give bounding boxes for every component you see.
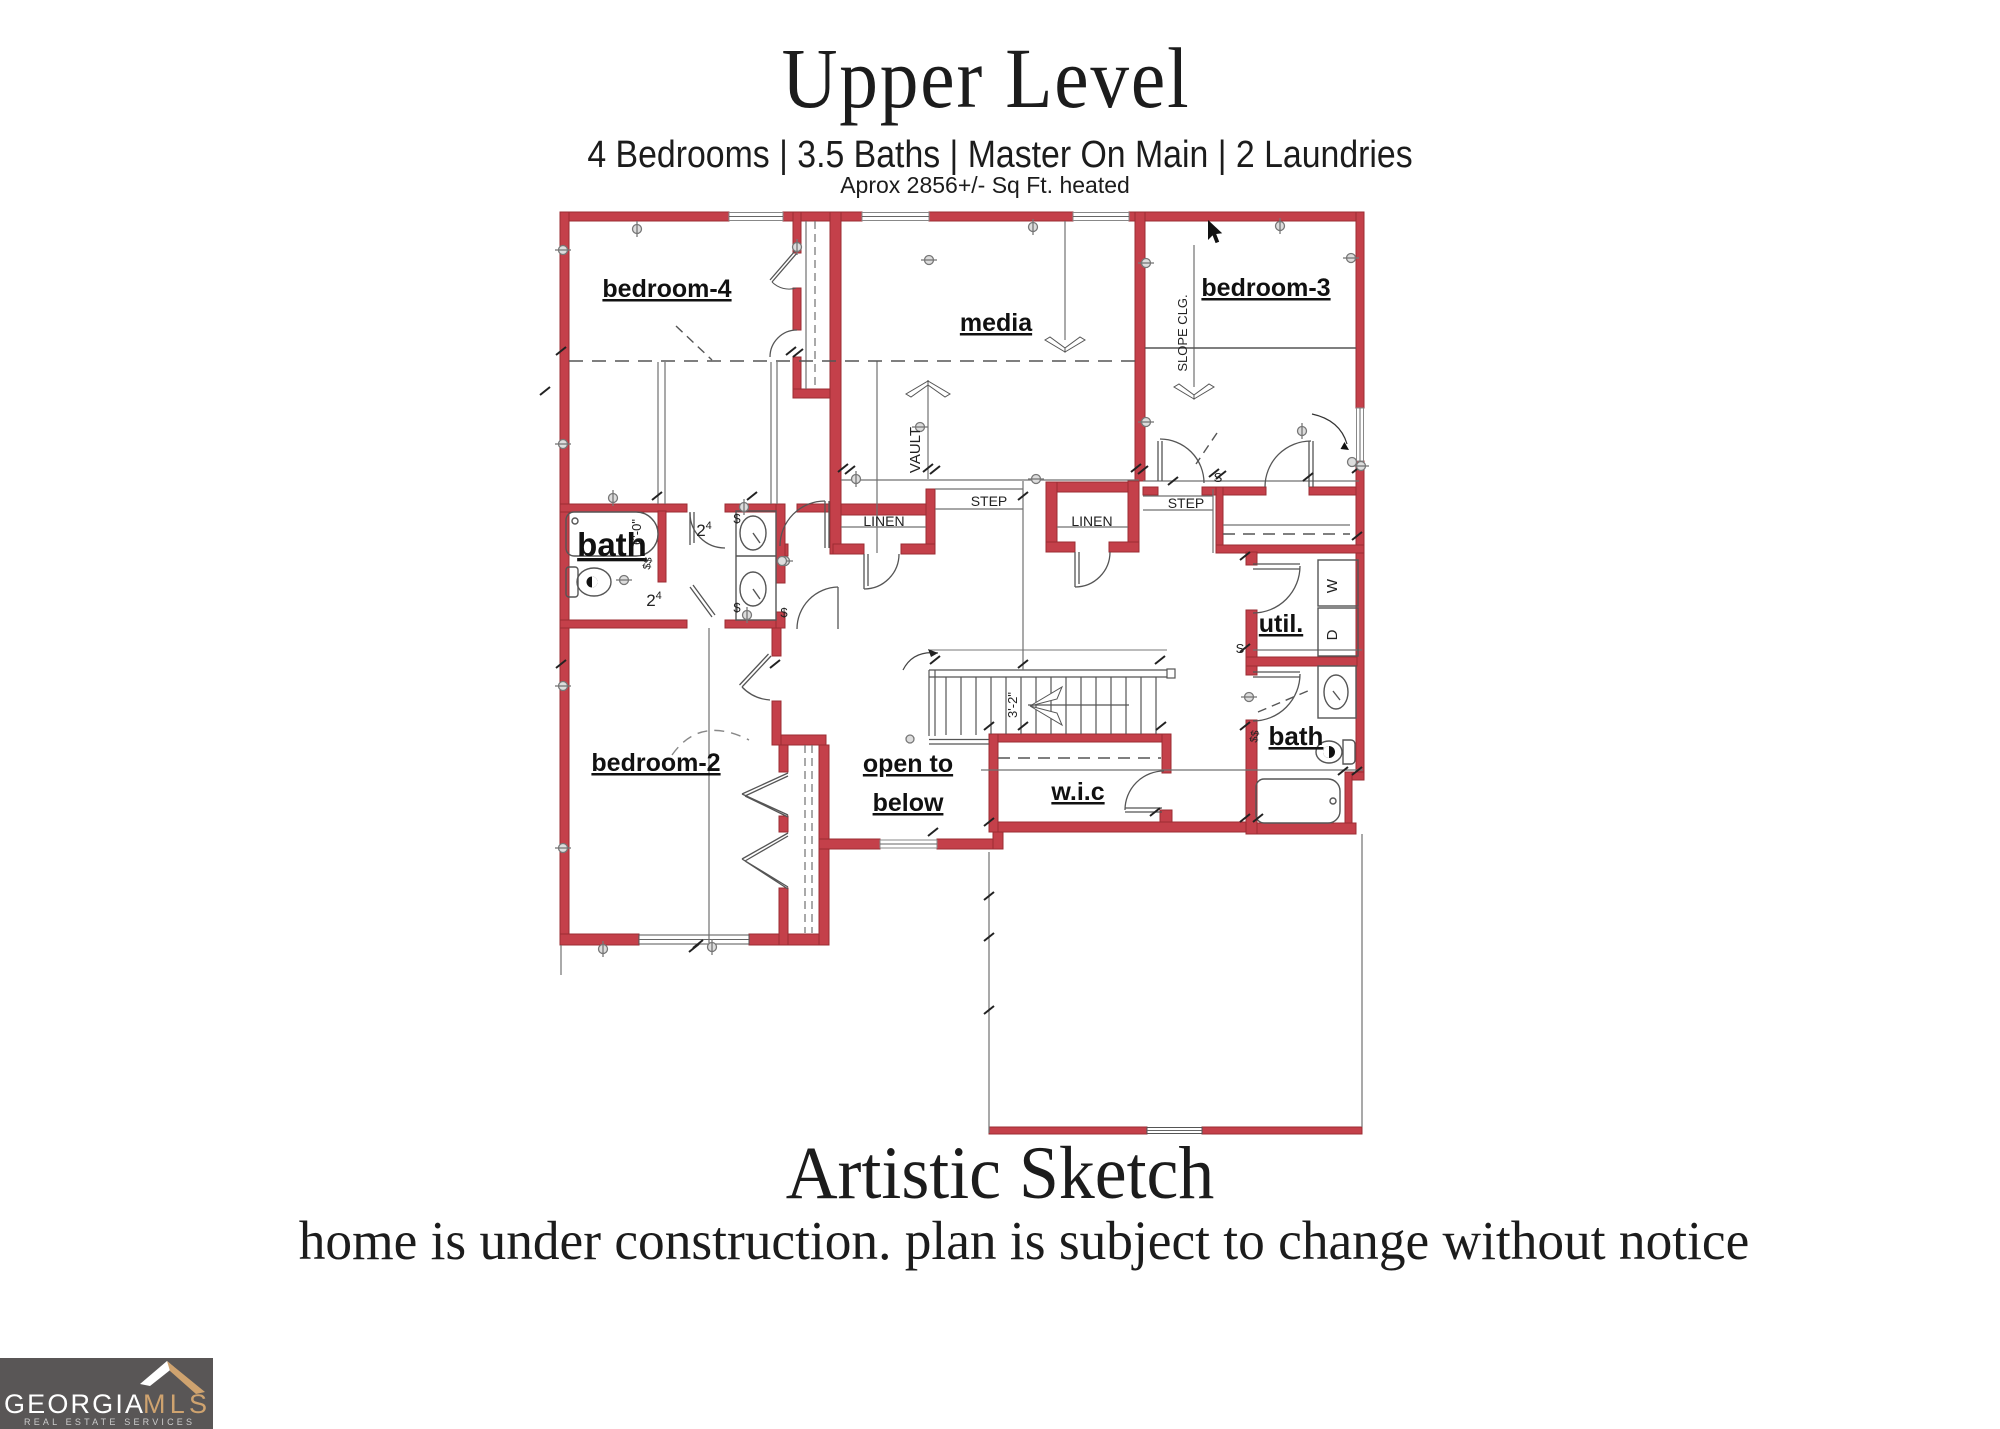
- svg-text:S: S: [1214, 470, 1223, 485]
- svg-text:REAL ESTATE SERVICES: REAL ESTATE SERVICES: [24, 1417, 195, 1427]
- svg-text:24: 24: [646, 590, 662, 610]
- svg-text:$: $: [733, 511, 741, 526]
- svg-text:bedroom-3: bedroom-3: [1201, 274, 1330, 302]
- svg-text:below: below: [873, 789, 944, 817]
- svg-text:bath: bath: [1269, 721, 1324, 751]
- svg-text:VAULT: VAULT: [907, 427, 924, 473]
- svg-text:STEP: STEP: [971, 493, 1008, 509]
- svg-text:util.: util.: [1259, 610, 1303, 638]
- svg-text:$$: $$: [1248, 729, 1262, 743]
- svg-text:MLS: MLS: [143, 1389, 207, 1419]
- svg-text:$: $: [733, 600, 741, 615]
- svg-text:24: 24: [696, 520, 712, 540]
- svg-text:open to: open to: [863, 750, 953, 778]
- svg-text:3'-2": 3'-2": [1005, 692, 1020, 718]
- svg-text:$$: $$: [641, 556, 655, 570]
- svg-text:LINEN: LINEN: [863, 513, 904, 529]
- svg-text:$: $: [780, 605, 788, 620]
- svg-text:w.i.c: w.i.c: [1050, 778, 1104, 806]
- svg-text:W: W: [1324, 578, 1341, 593]
- svg-text:GEORGIA: GEORGIA: [4, 1389, 143, 1419]
- svg-text:LINEN: LINEN: [1071, 513, 1112, 529]
- svg-text:S: S: [1236, 641, 1245, 656]
- svg-text:6'-0": 6'-0": [629, 519, 644, 545]
- svg-text:bedroom-2: bedroom-2: [591, 749, 720, 777]
- svg-text:bedroom-4: bedroom-4: [602, 275, 731, 303]
- svg-text:D: D: [1324, 629, 1341, 640]
- svg-text:STEP: STEP: [1168, 495, 1205, 511]
- svg-text:media: media: [960, 309, 1033, 337]
- svg-text:SLOPE CLG.: SLOPE CLG.: [1175, 294, 1190, 371]
